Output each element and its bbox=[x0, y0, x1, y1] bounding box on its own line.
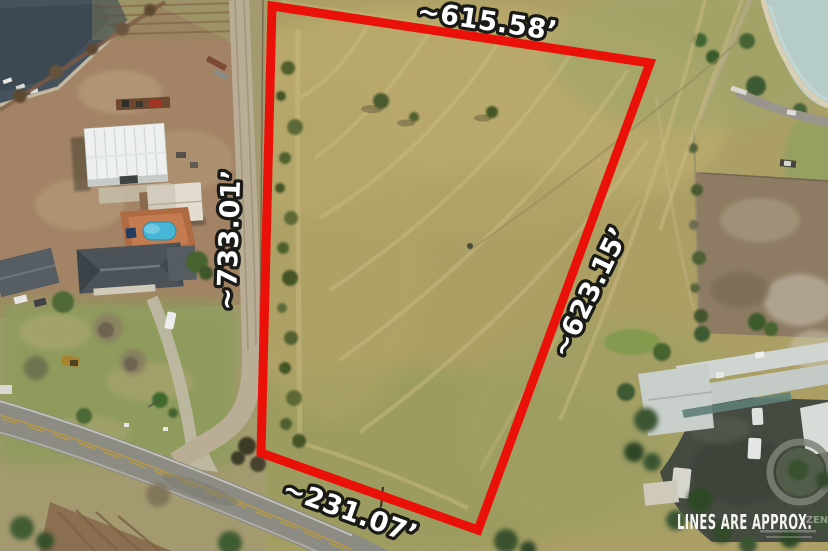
dimension-label-left: ~733.01’ bbox=[212, 169, 248, 311]
aerial-photo: ~615.58’ ~733.01’ ~623.15’ ~231.07’ LINE… bbox=[0, 0, 828, 551]
aerial-photo-canvas: ~615.58’ ~733.01’ ~623.15’ ~231.07’ LINE… bbox=[0, 0, 828, 551]
watermark-text: IZEN bbox=[802, 515, 828, 526]
